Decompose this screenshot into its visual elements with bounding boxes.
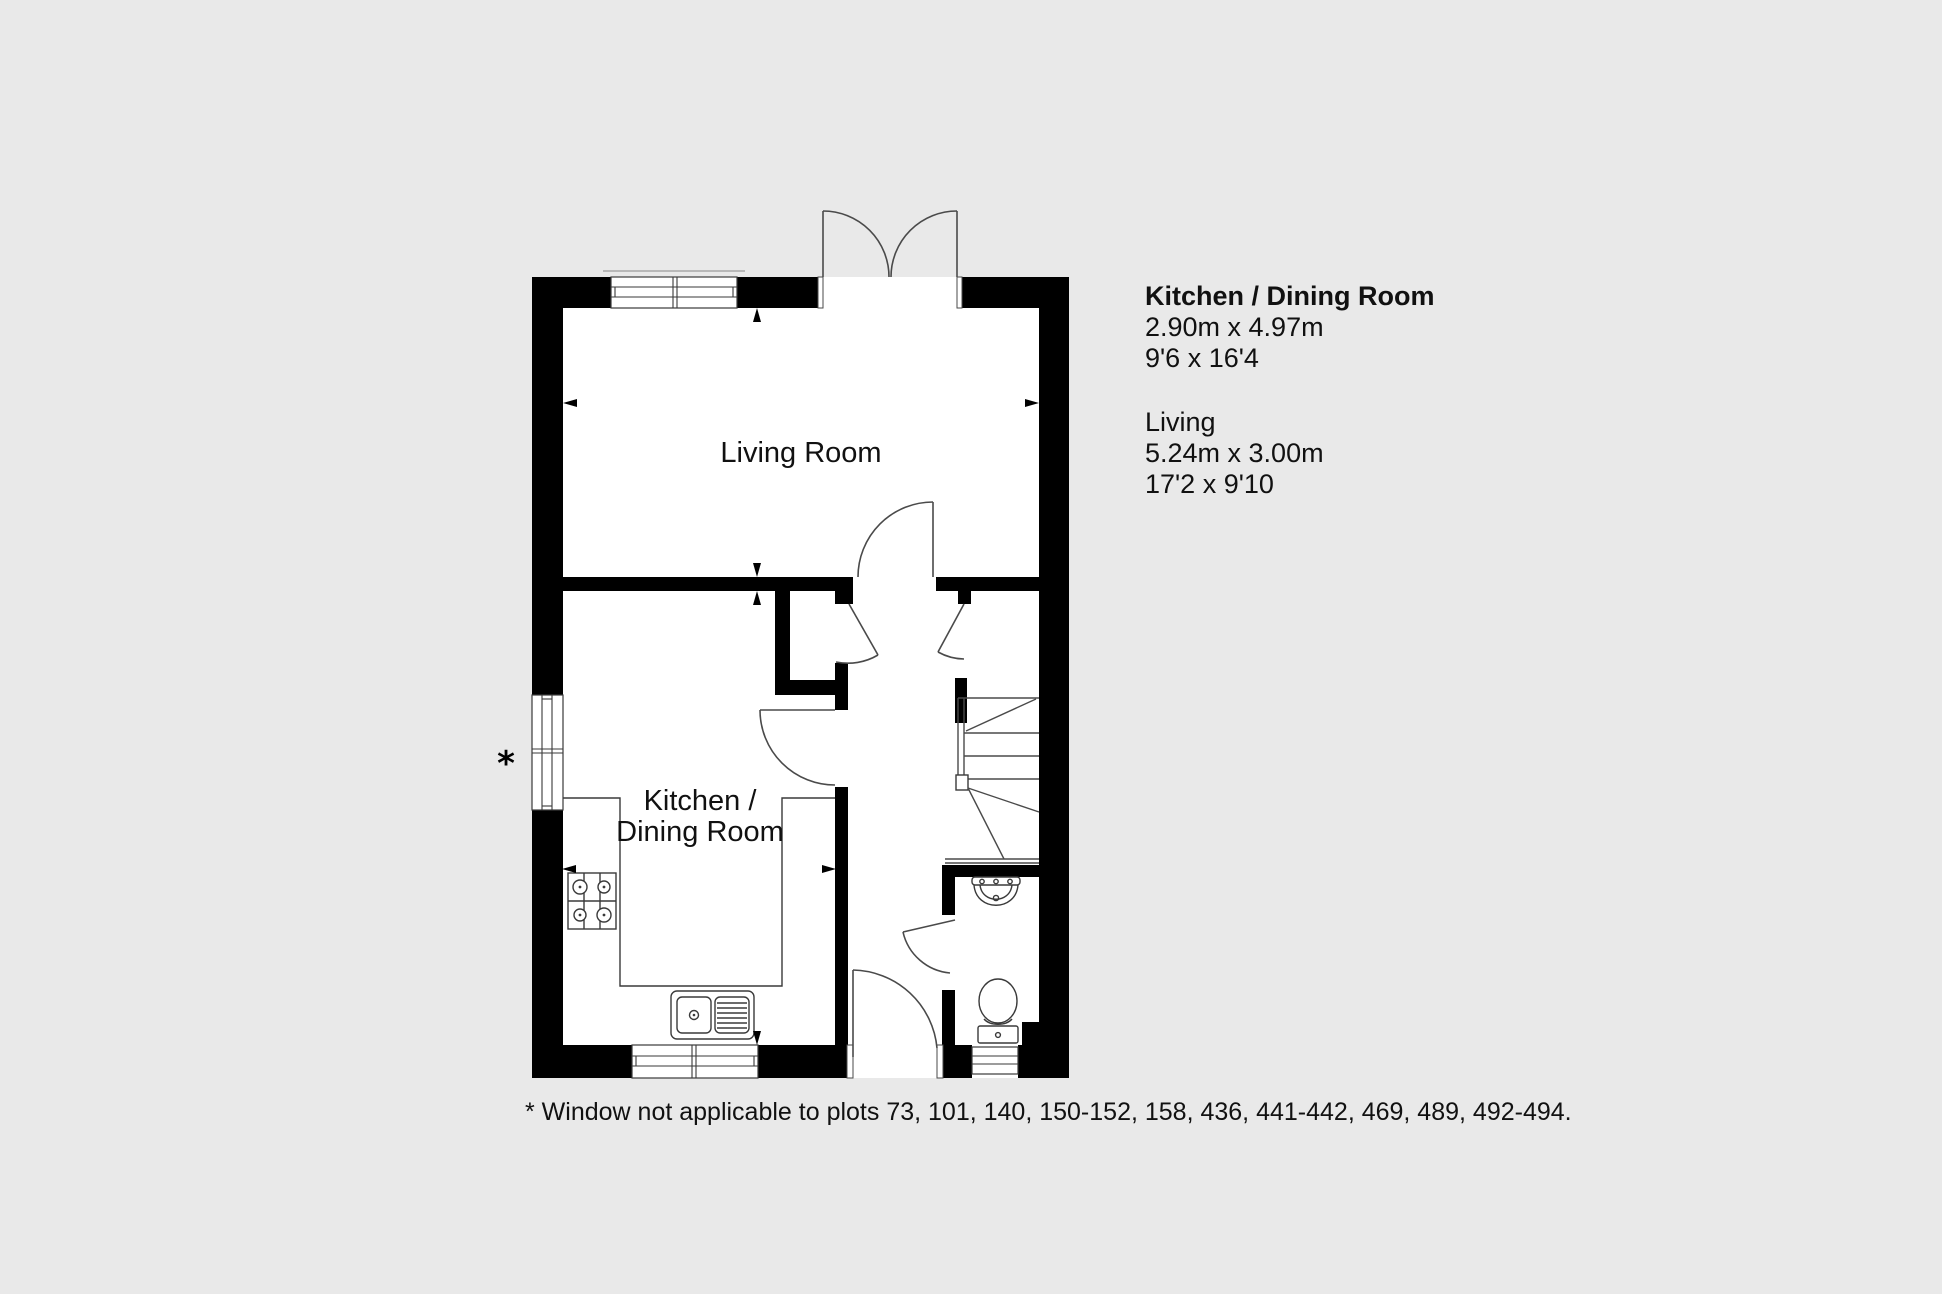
- window-top-icon: [603, 271, 745, 308]
- window-left-icon: [532, 695, 563, 810]
- room-label-living: Living Room: [720, 437, 881, 469]
- living-dims-metric: 5.24m x 3.00m: [1145, 438, 1435, 469]
- window-bottom-icon: [632, 1045, 758, 1078]
- floor-area: [532, 277, 1069, 1078]
- hob-icon: [568, 873, 616, 929]
- toilet-icon: [978, 979, 1018, 1043]
- kitchen-dims-imperial: 9'6 x 16'4: [1145, 343, 1435, 374]
- kitchen-dims-title: Kitchen / Dining Room: [1145, 281, 1435, 312]
- living-dims-title: Living: [1145, 407, 1435, 438]
- french-door-icon: [823, 211, 957, 277]
- sink-icon: [671, 991, 754, 1039]
- kitchen-dims-metric: 2.90m x 4.97m: [1145, 312, 1435, 343]
- panel-spacer: [1145, 374, 1435, 407]
- living-dims-imperial: 17'2 x 9'10: [1145, 469, 1435, 500]
- room-label-kitchen-line1: Kitchen /: [644, 785, 758, 817]
- footnote: * Window not applicable to plots 73, 101…: [525, 1098, 1572, 1127]
- asterisk-marker: *: [497, 744, 515, 784]
- window-wc-icon: [972, 1047, 1018, 1074]
- dimensions-panel: Kitchen / Dining Room 2.90m x 4.97m 9'6 …: [1145, 281, 1435, 500]
- room-label-kitchen-line2: Dining Room: [616, 816, 784, 848]
- floor-plan-page: Living Room Kitchen / Dining Room * Kitc…: [0, 0, 1942, 1294]
